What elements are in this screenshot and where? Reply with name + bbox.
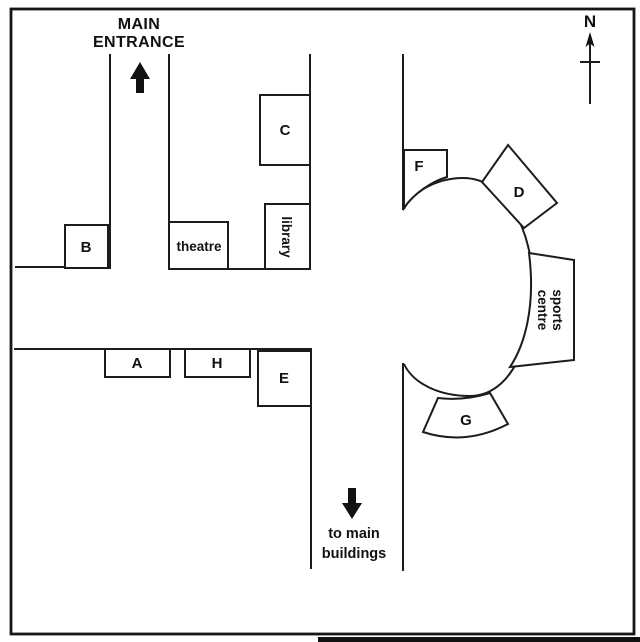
building-h-label: H [212, 355, 223, 372]
compass-n-label: N [584, 12, 596, 31]
campus-map-figure: MAIN ENTRANCE N B C A H E F D G theatre … [0, 0, 640, 642]
building-d-label: D [514, 184, 525, 201]
building-g-label: G [460, 412, 472, 429]
roads [15, 55, 403, 570]
building-e-label: E [279, 370, 289, 387]
entrance-arrow-up-icon [130, 62, 150, 93]
to-main-buildings-label-line1: to main [328, 526, 380, 542]
building-c-label: C [280, 122, 291, 139]
campus-map: MAIN ENTRANCE N B C A H E F D G theatre … [0, 0, 640, 642]
building-a-label: A [132, 355, 143, 372]
main-entrance-label-line2: ENTRANCE [93, 34, 185, 51]
main-entrance-label-line1: MAIN [118, 16, 160, 33]
exit-arrow-down-icon [342, 488, 362, 519]
building-f-label: F [414, 158, 423, 175]
theatre-label: theatre [176, 239, 222, 254]
library-label: library [279, 216, 294, 258]
sports-centre-label-line1: sports [550, 289, 565, 330]
scan-edge-artifact [318, 637, 640, 642]
building-f-shape [404, 150, 447, 208]
building-b-label: B [81, 239, 92, 256]
to-main-buildings-label-line2: buildings [322, 546, 386, 562]
compass-north-icon [581, 32, 599, 103]
sports-centre-label: sports centre [535, 289, 565, 330]
sports-centre-label-line2: centre [535, 290, 550, 331]
